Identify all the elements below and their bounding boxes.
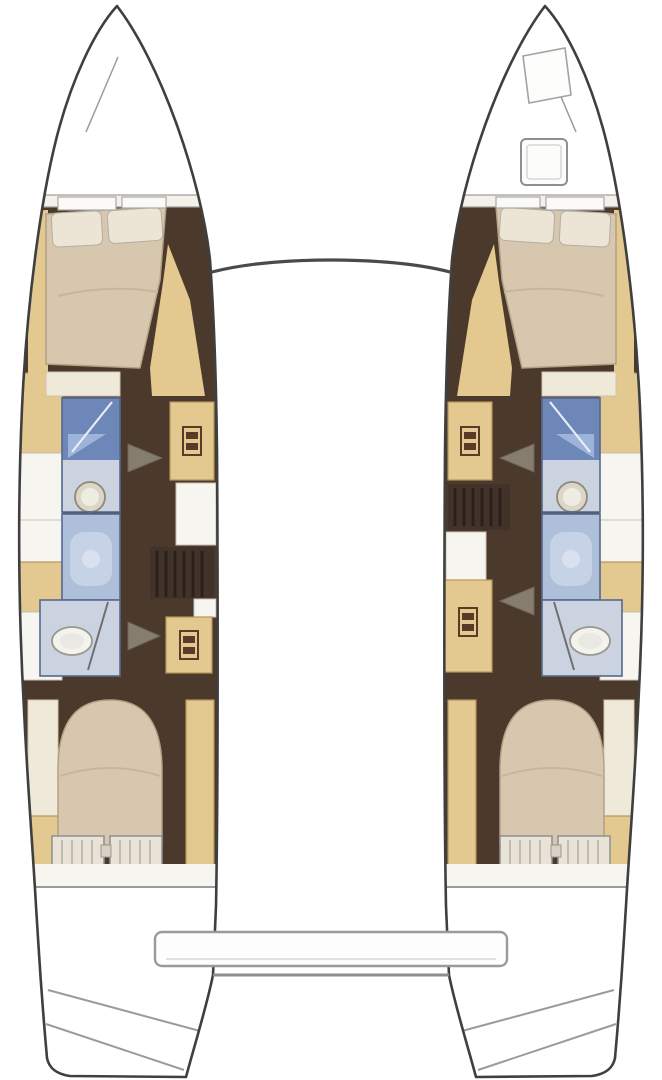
hatch-icon-bar <box>186 432 198 439</box>
aft-floor <box>24 864 218 888</box>
cabin-window <box>122 197 166 208</box>
hatch-icon-bar <box>186 443 198 450</box>
hull-lining <box>448 700 476 878</box>
starboard-aft-cabin <box>444 700 638 888</box>
drain-icon <box>82 550 100 568</box>
sink-basin-icon <box>81 488 99 506</box>
hull-lining <box>28 700 58 816</box>
anchor-locker-icon <box>523 48 571 103</box>
aft-floor <box>444 864 638 888</box>
hatch-icon-bar <box>183 636 195 643</box>
berth-head-locker <box>52 836 104 868</box>
hatch-icon-bar <box>464 443 476 450</box>
drain-icon <box>562 550 580 568</box>
cabin-window <box>546 197 604 210</box>
port-hull <box>14 6 220 1077</box>
cockpit-bench <box>155 932 507 966</box>
hatch-icon-bar <box>462 613 474 620</box>
pillow <box>107 207 163 244</box>
berth-head-locker <box>500 836 552 868</box>
hull-lining <box>186 700 214 878</box>
locker-latch <box>101 845 111 857</box>
berth-head-locker <box>558 836 610 868</box>
starboard-hull <box>442 6 648 1077</box>
pillow <box>559 211 611 248</box>
deck-locker <box>448 402 492 480</box>
cabin-window <box>496 197 540 208</box>
catamaran-floorplan <box>0 0 662 1080</box>
cabin-window <box>58 197 116 210</box>
hatch-icon-bar <box>464 432 476 439</box>
locker <box>16 453 62 520</box>
locker <box>600 520 646 562</box>
port-aft-cabin <box>24 700 218 888</box>
counter <box>446 532 486 580</box>
berth-foot-locker <box>46 372 120 396</box>
hull-lining <box>604 700 634 816</box>
hatch-icon-bar <box>462 624 474 631</box>
locker <box>16 520 62 562</box>
pillow <box>51 211 103 248</box>
floorplan-canvas <box>0 0 662 1080</box>
locker-latch <box>551 845 561 857</box>
companionway-steps <box>150 547 214 599</box>
counter-small <box>194 599 216 617</box>
berth-foot-locker <box>542 372 616 396</box>
sink-basin-icon <box>563 488 581 506</box>
berth-head-locker <box>110 836 162 868</box>
pillow <box>499 207 555 244</box>
hatch-icon-bar <box>183 647 195 654</box>
trampoline-beam <box>212 260 450 272</box>
deck-locker <box>170 402 214 480</box>
deck-locker <box>166 617 212 673</box>
toilet-bowl-icon <box>60 633 84 649</box>
locker <box>600 453 646 520</box>
toilet-bowl-icon <box>578 633 602 649</box>
counter <box>176 483 216 545</box>
